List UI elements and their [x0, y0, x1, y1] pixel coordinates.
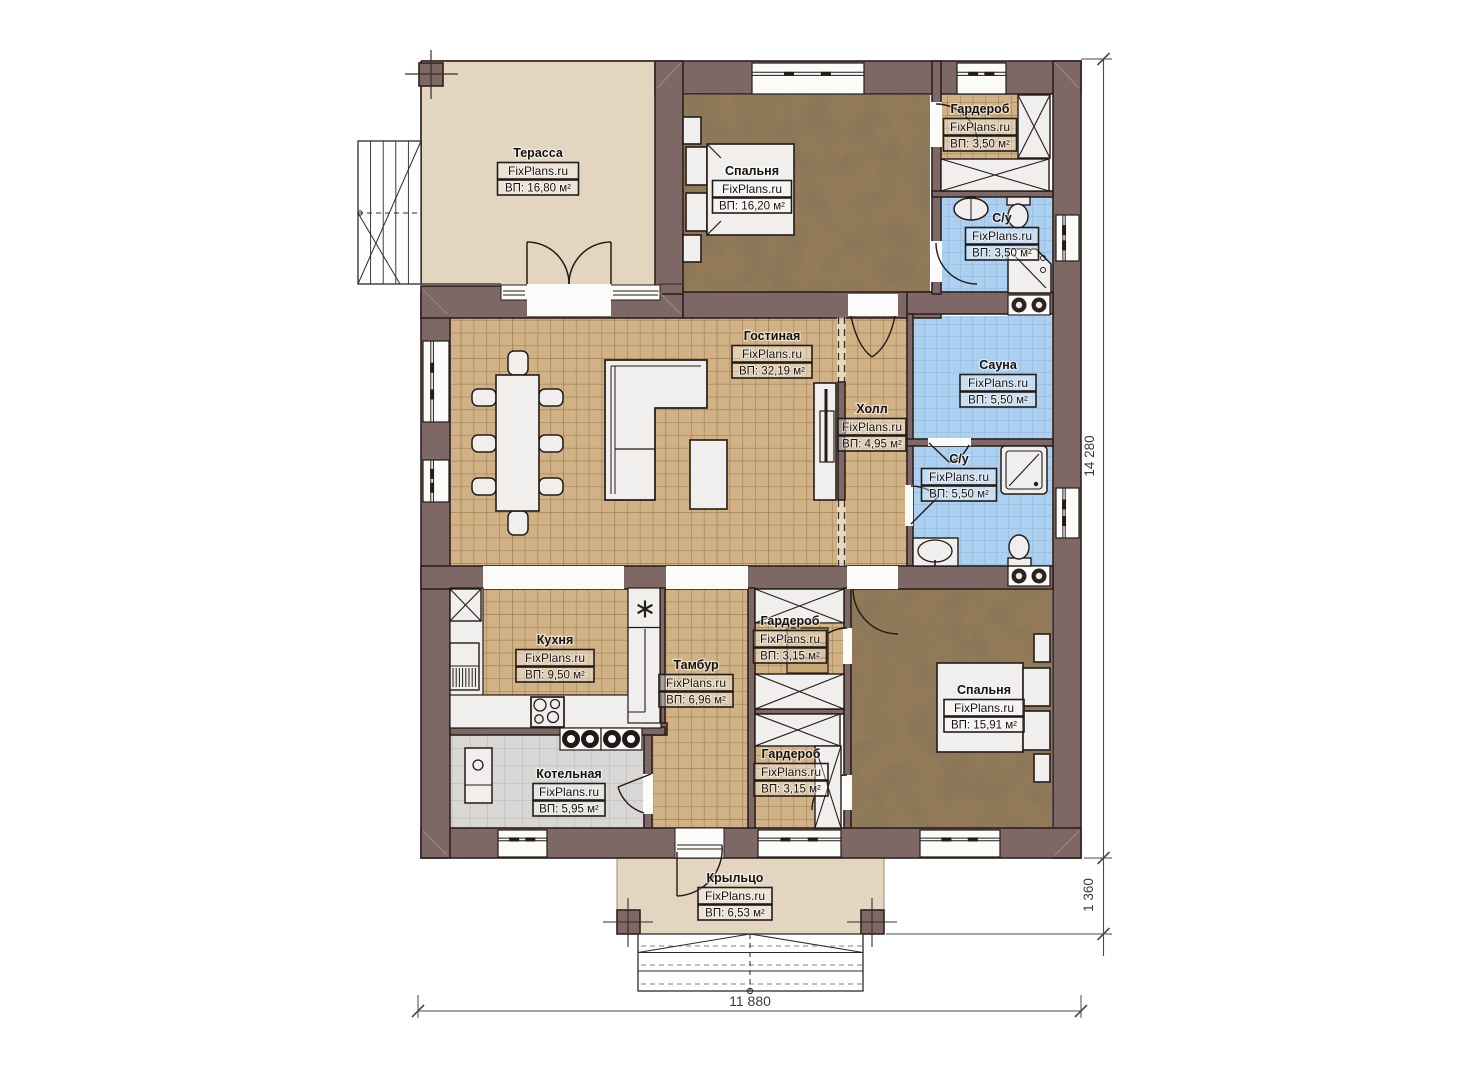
svg-text:FixPlans.ru: FixPlans.ru [539, 785, 599, 799]
svg-text:ВП: 4,95 м²: ВП: 4,95 м² [842, 439, 902, 451]
svg-text:С/у: С/у [992, 211, 1012, 225]
svg-text:ВП: 3,15 м²: ВП: 3,15 м² [760, 651, 820, 663]
svg-text:FixPlans.ru: FixPlans.ru [842, 420, 902, 434]
svg-text:FixPlans.ru: FixPlans.ru [968, 376, 1028, 390]
svg-text:FixPlans.ru: FixPlans.ru [508, 164, 568, 178]
svg-text:FixPlans.ru: FixPlans.ru [722, 182, 782, 196]
svg-text:FixPlans.ru: FixPlans.ru [705, 889, 765, 903]
svg-text:С/у: С/у [949, 452, 969, 466]
svg-text:Гардероб: Гардероб [760, 614, 819, 628]
svg-text:ВП: 6,53 м²: ВП: 6,53 м² [705, 908, 765, 920]
svg-text:ВП: 3,50 м²: ВП: 3,50 м² [950, 139, 1010, 151]
svg-text:Терасса: Терасса [513, 146, 564, 160]
svg-text:Спальня: Спальня [957, 683, 1011, 697]
svg-text:ВП: 3,50 м²: ВП: 3,50 м² [972, 248, 1032, 260]
svg-text:ВП: 32,19 м²: ВП: 32,19 м² [739, 366, 805, 378]
svg-text:FixPlans.ru: FixPlans.ru [950, 120, 1010, 134]
svg-text:ВП: 15,91 м²: ВП: 15,91 м² [951, 720, 1017, 732]
svg-text:ВП: 16,80 м²: ВП: 16,80 м² [505, 183, 571, 195]
svg-text:FixPlans.ru: FixPlans.ru [760, 632, 820, 646]
svg-text:Гостиная: Гостиная [744, 329, 801, 343]
svg-text:ВП: 6,96 м²: ВП: 6,96 м² [666, 695, 726, 707]
svg-text:ВП: 5,50 м²: ВП: 5,50 м² [968, 395, 1028, 407]
svg-text:ВП: 9,50 м²: ВП: 9,50 м² [525, 670, 585, 682]
svg-text:Крыльцо: Крыльцо [707, 871, 764, 885]
svg-text:Гардероб: Гардероб [950, 102, 1009, 116]
svg-text:Котельная: Котельная [536, 767, 601, 781]
svg-text:Кухня: Кухня [537, 633, 574, 647]
svg-text:FixPlans.ru: FixPlans.ru [929, 470, 989, 484]
svg-text:ВП: 5,50 м²: ВП: 5,50 м² [929, 489, 989, 501]
svg-text:FixPlans.ru: FixPlans.ru [954, 701, 1014, 715]
svg-text:14 280: 14 280 [1082, 435, 1097, 476]
svg-text:FixPlans.ru: FixPlans.ru [742, 347, 802, 361]
svg-text:ВП: 5,95 м²: ВП: 5,95 м² [539, 804, 599, 816]
svg-text:FixPlans.ru: FixPlans.ru [972, 229, 1032, 243]
svg-text:Сауна: Сауна [979, 358, 1018, 372]
svg-text:11 880: 11 880 [729, 993, 771, 1009]
svg-text:Спальня: Спальня [725, 164, 779, 178]
svg-text:Холл: Холл [856, 402, 887, 416]
svg-text:FixPlans.ru: FixPlans.ru [761, 765, 821, 779]
svg-text:ВП: 3,15 м²: ВП: 3,15 м² [761, 784, 821, 796]
svg-text:FixPlans.ru: FixPlans.ru [525, 651, 585, 665]
svg-text:ВП: 16,20 м²: ВП: 16,20 м² [719, 201, 785, 213]
svg-text:Гардероб: Гардероб [761, 747, 820, 761]
svg-text:Тамбур: Тамбур [673, 658, 719, 672]
svg-text:FixPlans.ru: FixPlans.ru [666, 676, 726, 690]
svg-text:1 360: 1 360 [1081, 878, 1096, 912]
